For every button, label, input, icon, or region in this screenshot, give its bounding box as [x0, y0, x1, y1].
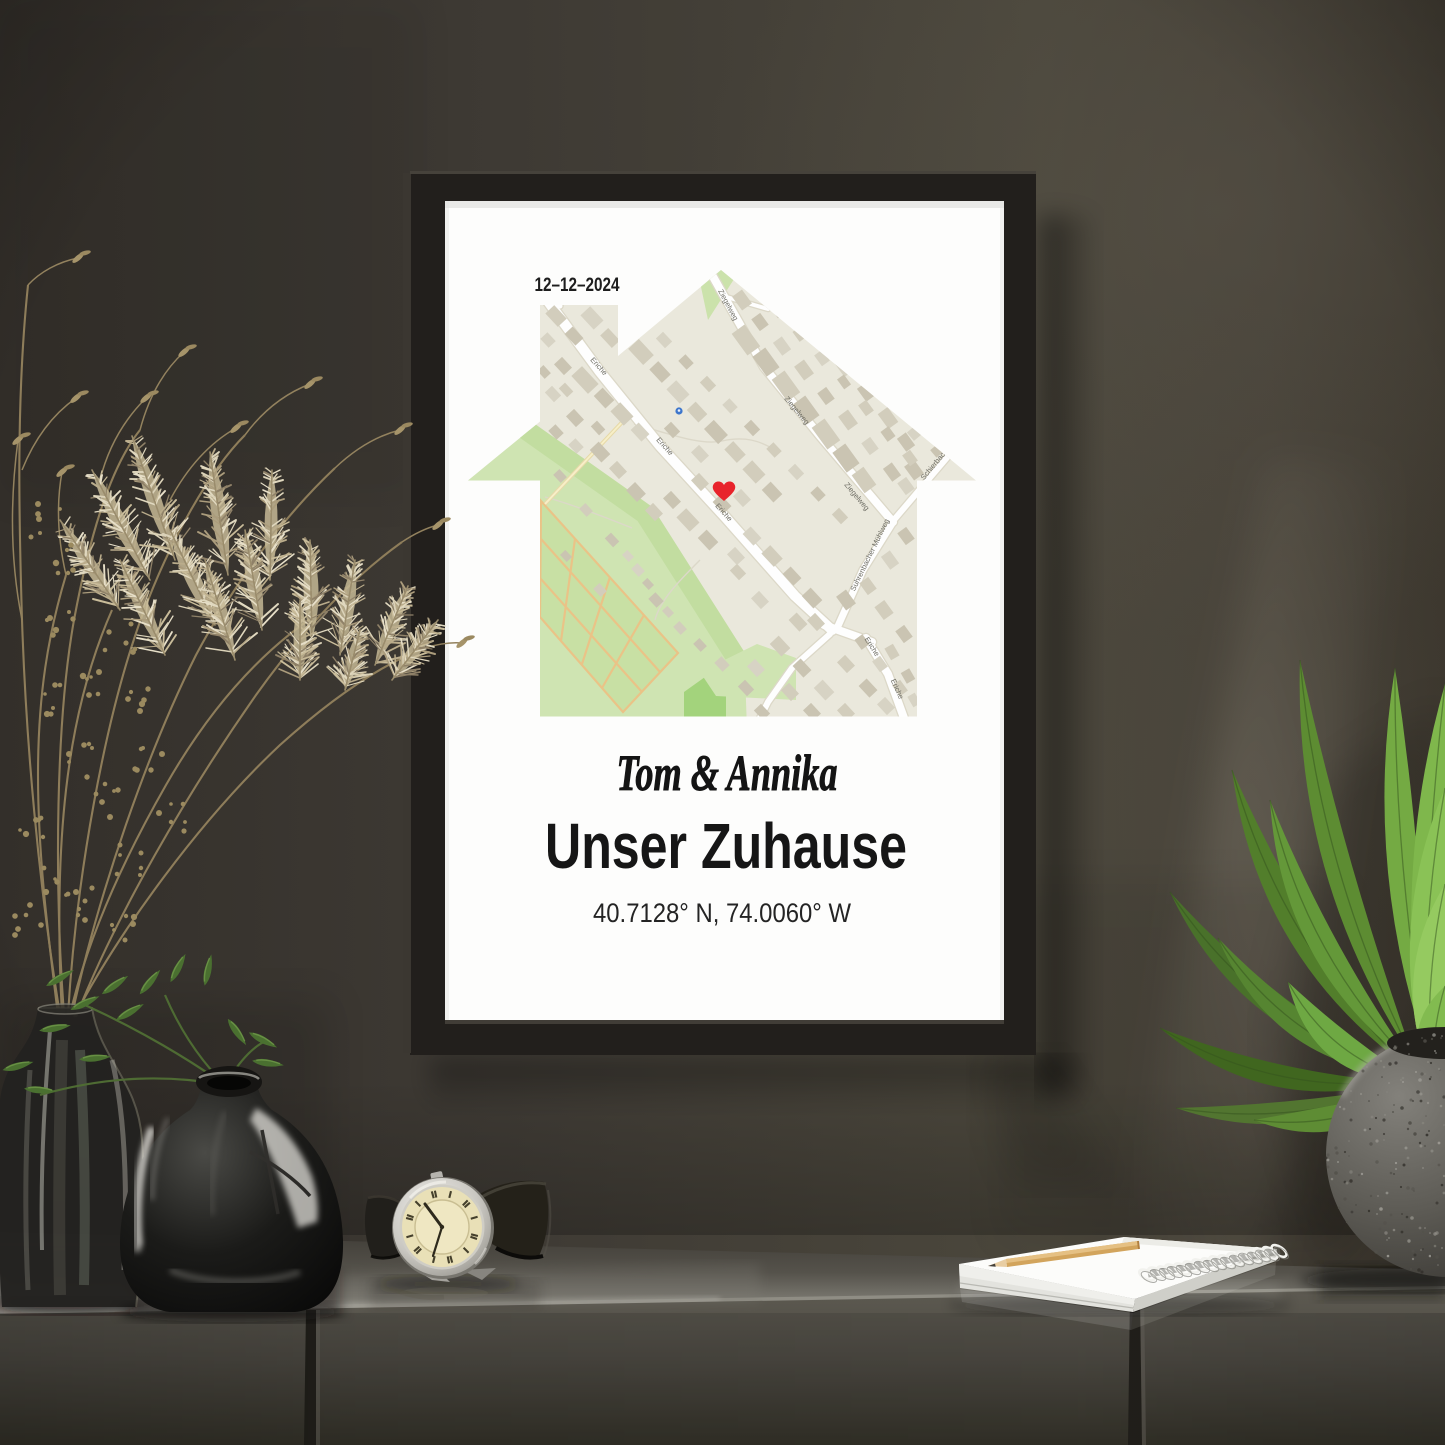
svg-text:Unser Zuhause: Unser Zuhause: [545, 810, 907, 882]
svg-text:12–12–2024: 12–12–2024: [535, 275, 620, 296]
svg-text:40.7128° N, 74.0060° W: 40.7128° N, 74.0060° W: [593, 898, 851, 928]
svg-text:Tom & Annika: Tom & Annika: [617, 746, 838, 802]
